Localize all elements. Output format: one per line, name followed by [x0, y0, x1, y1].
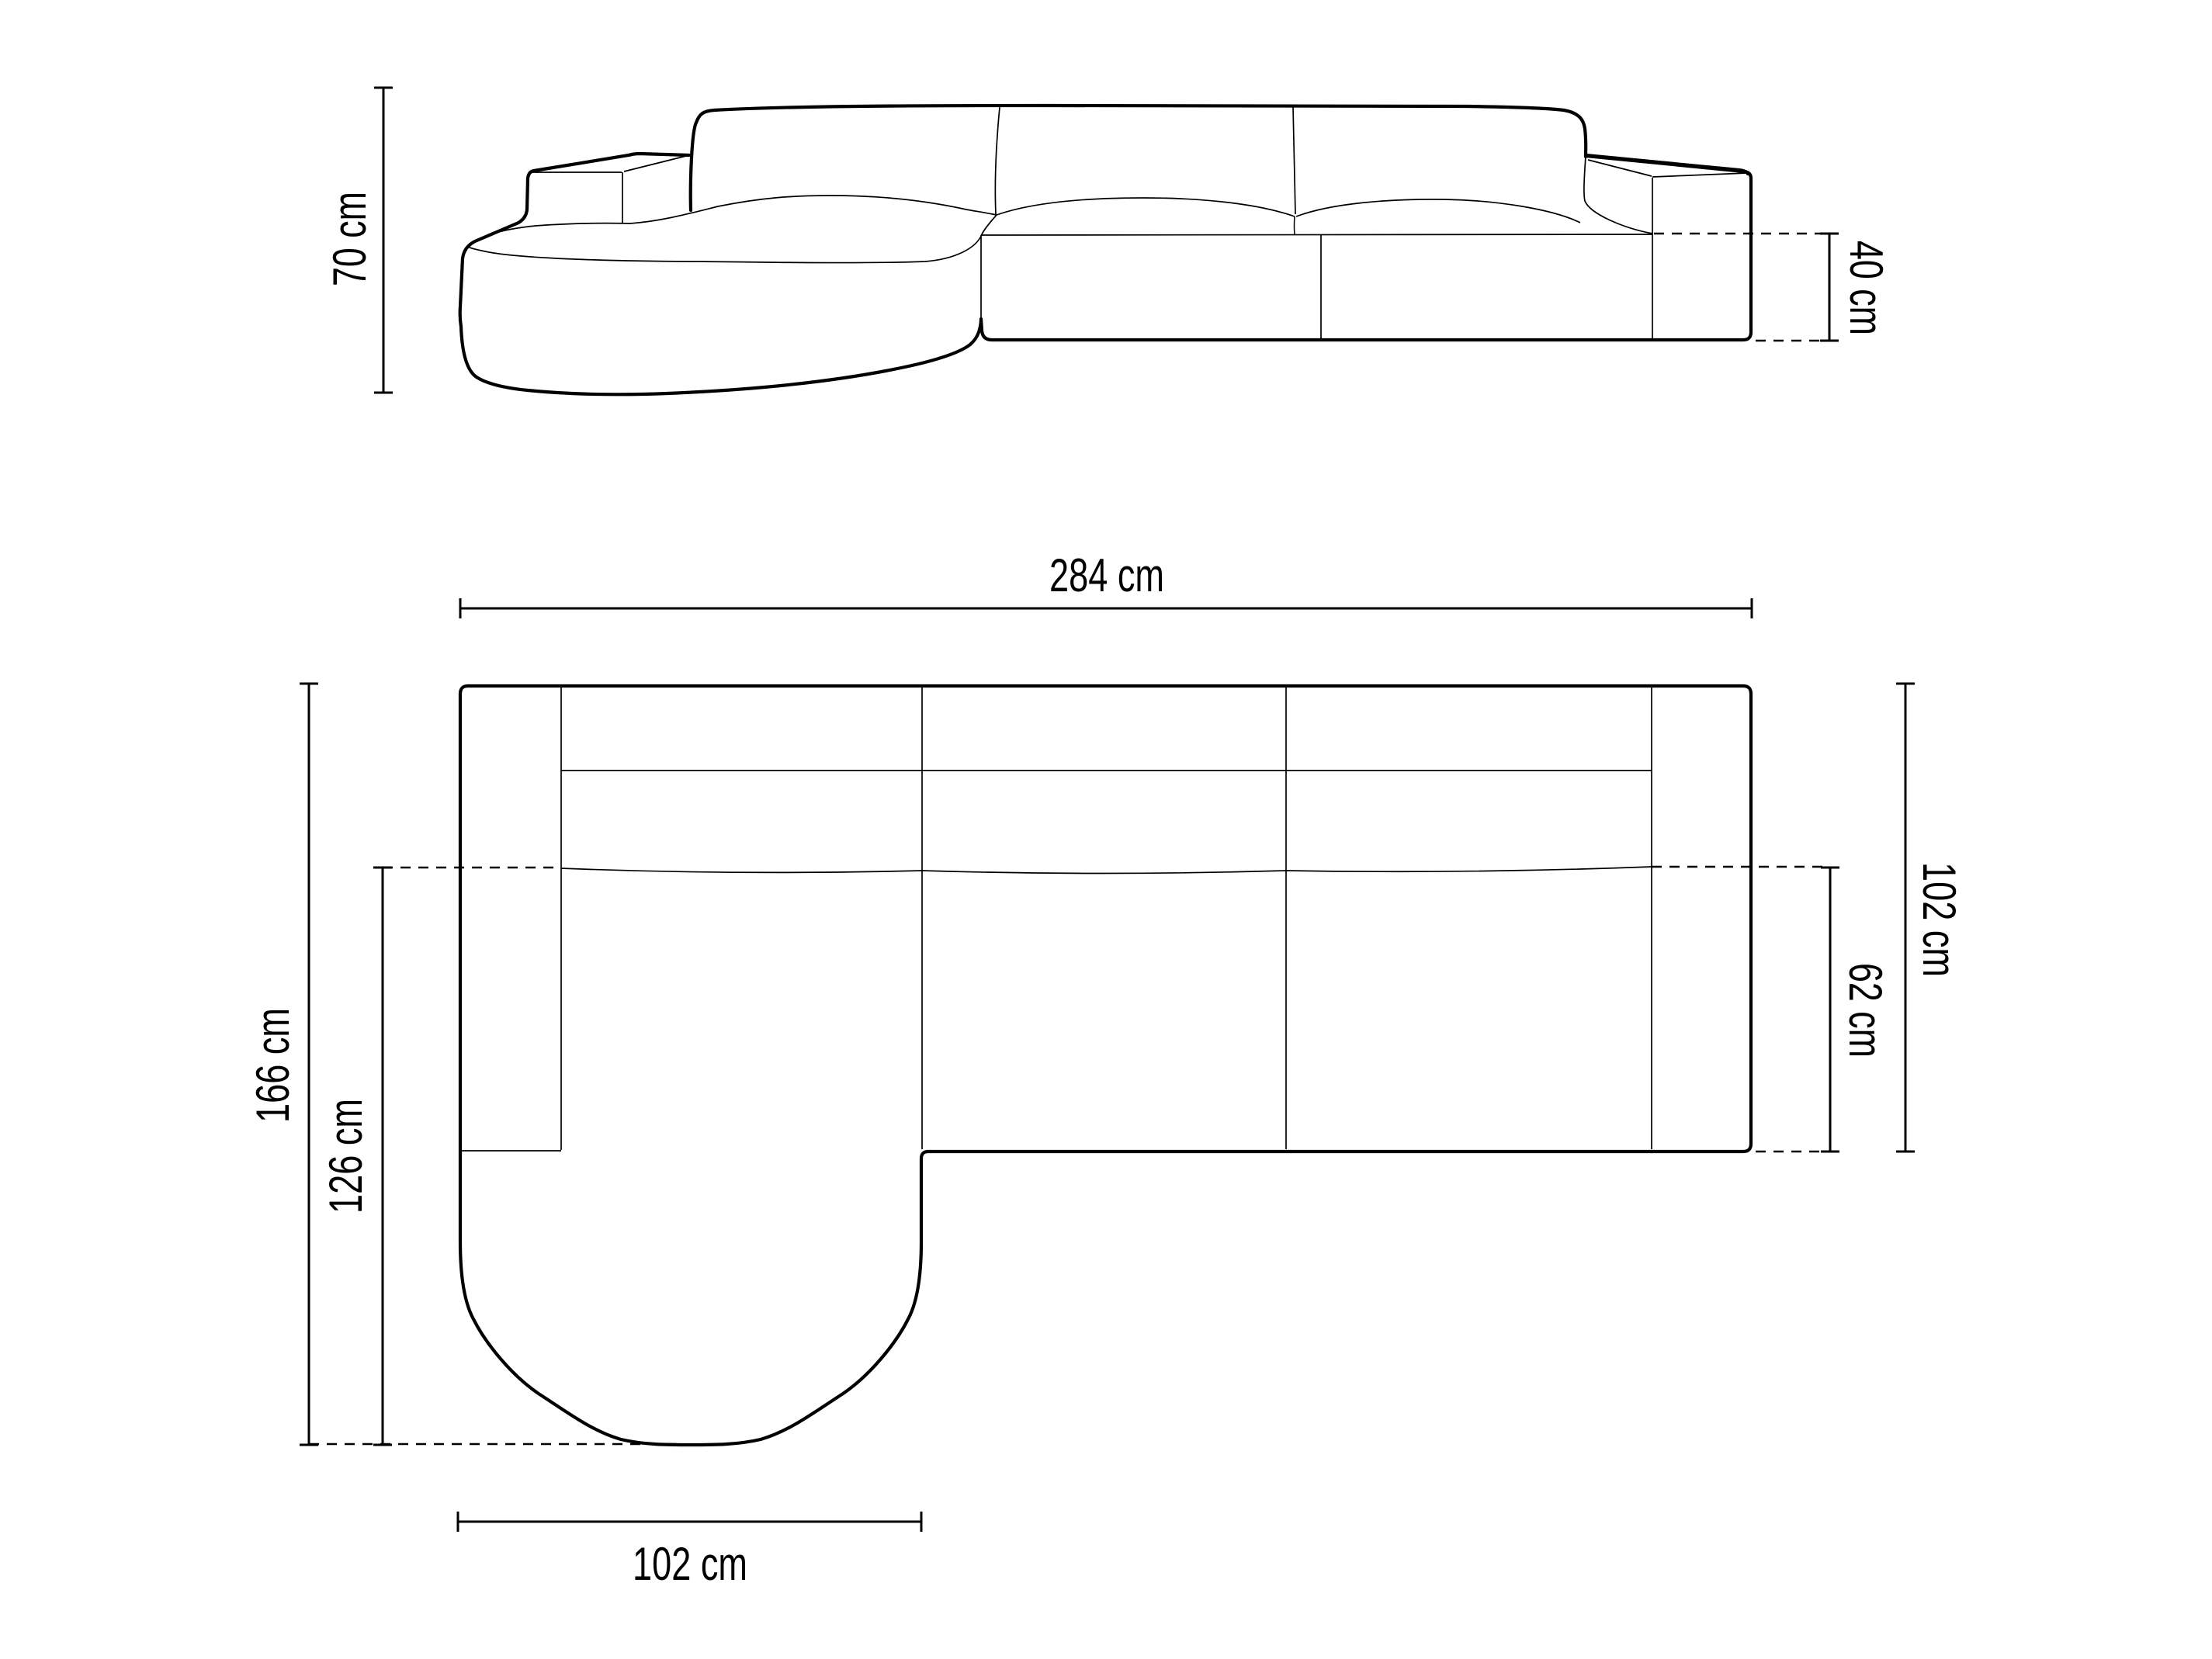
- svg-text:62 cm: 62 cm: [1839, 963, 1891, 1058]
- svg-text:126 cm: 126 cm: [320, 1099, 372, 1214]
- svg-text:102 cm: 102 cm: [633, 1538, 747, 1590]
- svg-text:40 cm: 40 cm: [1840, 241, 1892, 335]
- svg-text:70 cm: 70 cm: [324, 192, 376, 286]
- svg-text:284 cm: 284 cm: [1049, 549, 1164, 601]
- svg-text:166 cm: 166 cm: [247, 1008, 299, 1123]
- svg-text:102 cm: 102 cm: [1913, 862, 1965, 977]
